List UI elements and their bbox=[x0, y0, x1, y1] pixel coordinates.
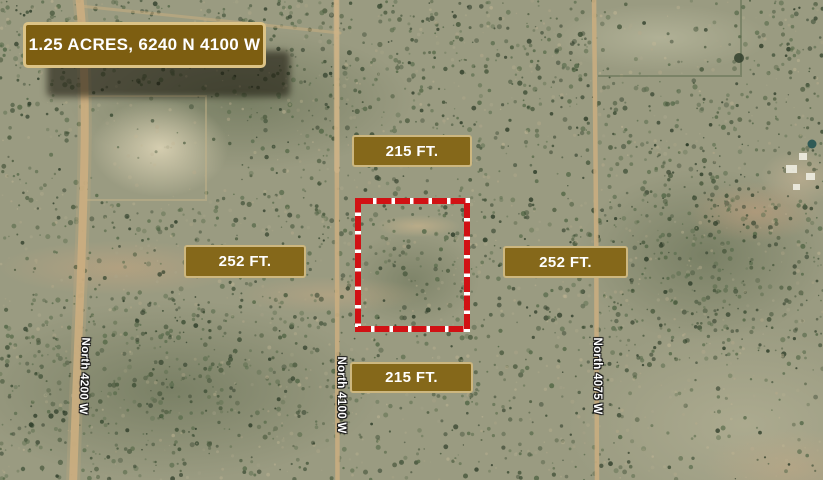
title-banner: 1.25 ACRES, 6240 N 4100 W bbox=[23, 22, 266, 68]
vegetation-speckles bbox=[0, 0, 823, 480]
dimension-label-bottom-text: 215 FT. bbox=[385, 369, 438, 386]
dark-tree-blob bbox=[734, 53, 744, 63]
title-banner-text: 1.25 ACRES, 6240 N 4100 W bbox=[29, 35, 261, 55]
dimension-label-top-text: 215 FT. bbox=[386, 143, 439, 160]
dimension-label-left: 252 FT. bbox=[184, 245, 306, 278]
dimension-label-top: 215 FT. bbox=[352, 135, 472, 167]
dimension-label-left-text: 252 FT. bbox=[219, 253, 272, 270]
dimension-label-right-text: 252 FT. bbox=[539, 254, 592, 271]
dimension-label-right: 252 FT. bbox=[503, 246, 628, 278]
terrain-features bbox=[0, 0, 823, 480]
road-label-north-4075-w: North 4075 W bbox=[591, 337, 603, 414]
structures bbox=[786, 153, 815, 190]
road-label-north-4100-w: North 4100 W bbox=[335, 356, 347, 433]
old-field-boundary bbox=[86, 96, 206, 200]
pond-blob bbox=[808, 140, 817, 149]
dimension-label-bottom: 215 FT. bbox=[350, 362, 473, 393]
satellite-terrain bbox=[0, 0, 823, 480]
land-listing-map: 1.25 ACRES, 6240 N 4100 W 215 FT. 252 FT… bbox=[0, 0, 823, 480]
